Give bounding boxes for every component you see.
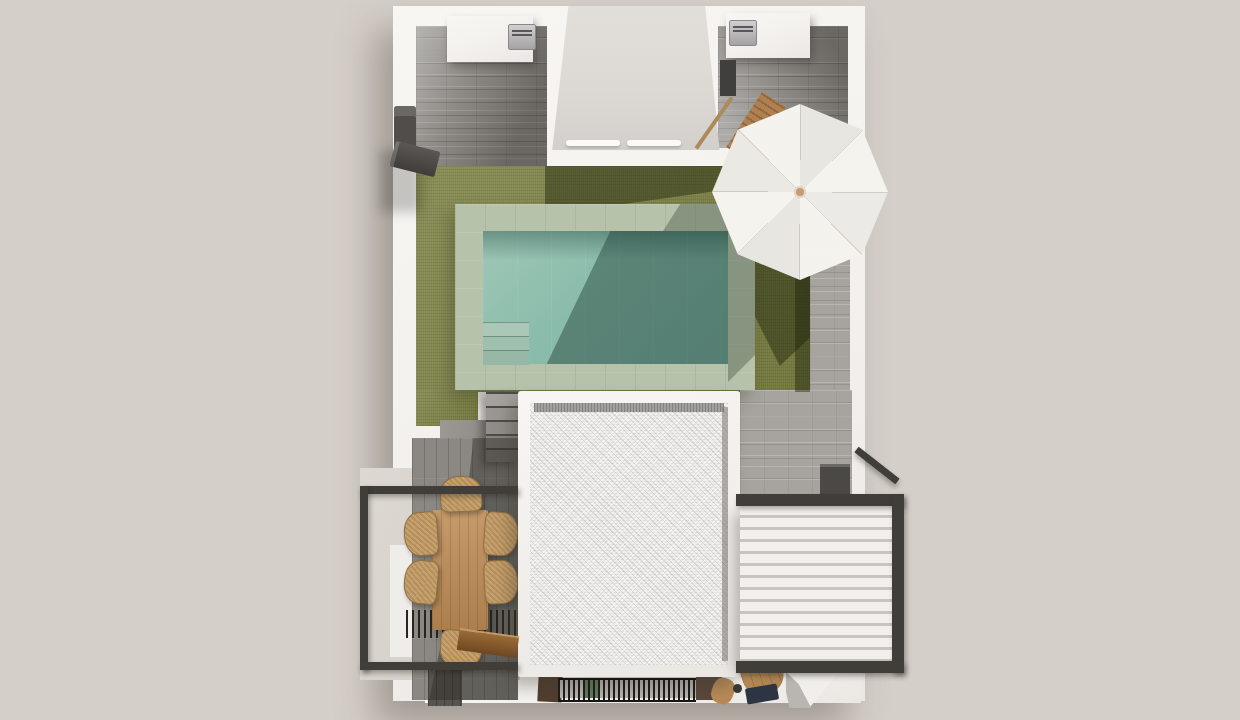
entrance-grate-slats	[558, 678, 696, 702]
pergola-planter-box	[820, 464, 850, 498]
window-top-right-wing	[720, 60, 736, 96]
pergola-louvers	[740, 506, 893, 662]
flat-roof	[518, 391, 740, 677]
pool-step-1	[483, 322, 529, 337]
door-sill-left	[566, 140, 620, 146]
ac-unit-right	[729, 20, 757, 46]
flat-roof-rim-right	[722, 407, 728, 661]
knob	[733, 684, 742, 693]
railing-left	[360, 486, 368, 670]
stair-tread	[486, 420, 520, 434]
pool-step-3	[483, 350, 529, 365]
pergola-frame-top	[736, 494, 904, 506]
parasol-hub	[794, 186, 806, 198]
stair-tread	[486, 392, 520, 406]
pergola-frame-bottom	[736, 661, 904, 673]
villa-top-view-render	[0, 0, 1240, 720]
railing-bottom	[360, 662, 518, 670]
door-sill-right	[627, 140, 681, 146]
stair-tread	[486, 406, 520, 420]
flat-roof-gravel	[530, 403, 728, 665]
dining-table	[432, 510, 488, 630]
flat-roof-rim-top	[534, 403, 724, 412]
courtyard-floor	[545, 6, 725, 150]
dining-chair-top	[439, 475, 482, 512]
pergola-frame-right	[892, 494, 904, 673]
railing-top	[360, 486, 518, 494]
parasol	[712, 104, 888, 280]
dining-chair-right-2	[483, 559, 519, 605]
pool-step-2	[483, 336, 529, 351]
ac-unit-left	[508, 24, 536, 50]
dining-chair-left-1	[403, 511, 440, 557]
dining-chair-left-2	[402, 559, 440, 606]
